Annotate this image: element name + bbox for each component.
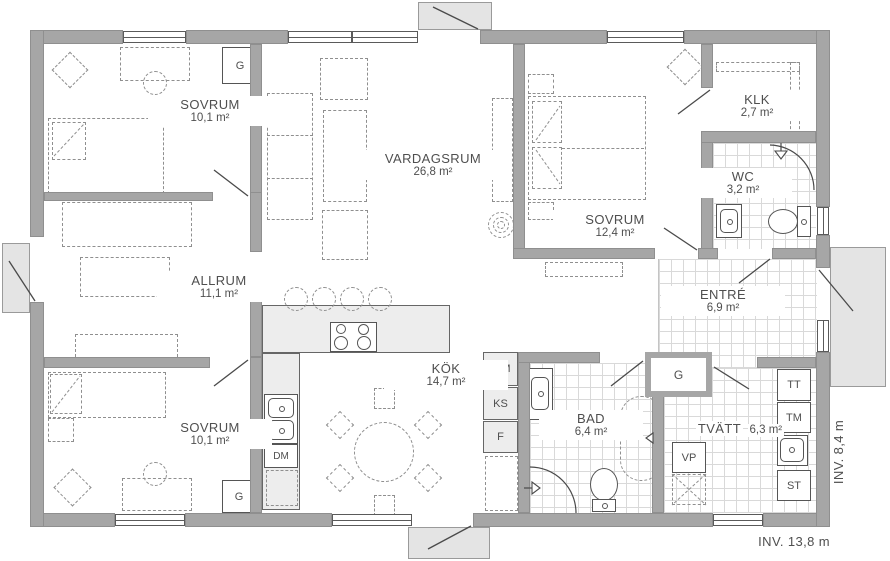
heat-pump-label: VP bbox=[682, 452, 697, 464]
wall-segment bbox=[186, 30, 288, 44]
bed-pillow bbox=[532, 147, 562, 189]
wall-segment bbox=[44, 192, 213, 201]
room-area: 2,7 m² bbox=[707, 107, 807, 120]
room-name: ALLRUM bbox=[159, 273, 279, 288]
patio-left bbox=[2, 243, 30, 313]
room-name: SOVRUM bbox=[555, 212, 675, 227]
bed-pillow bbox=[532, 101, 562, 143]
nightstand bbox=[528, 74, 554, 94]
room-label-klk: KLK 2,7 m² bbox=[705, 91, 809, 121]
room-name: SOVRUM bbox=[150, 420, 270, 435]
wall-segment bbox=[250, 192, 262, 252]
wall-segment bbox=[30, 30, 44, 237]
flush-dot bbox=[602, 503, 608, 509]
wall-segment bbox=[250, 300, 262, 357]
window bbox=[817, 207, 829, 235]
shelf-unit bbox=[322, 210, 368, 260]
inner-height-dimension: INV. 8,4 m bbox=[831, 392, 849, 512]
nightstand bbox=[528, 202, 554, 220]
room-label-sovrum-nw: SOVRUM 10,1 m² bbox=[148, 96, 272, 126]
dining-table bbox=[354, 422, 414, 482]
fridge-label: KS bbox=[493, 398, 508, 410]
bar-stool bbox=[368, 287, 392, 311]
flush-dot bbox=[801, 219, 807, 225]
room-label-sovrum-e: SOVRUM 12,4 m² bbox=[553, 211, 677, 241]
room-label-kok: KÖK 14,7 m² bbox=[384, 360, 508, 390]
bed-pillow bbox=[50, 374, 82, 414]
window bbox=[713, 514, 763, 526]
dining-chair bbox=[326, 464, 354, 492]
window bbox=[288, 31, 352, 43]
drain-dot bbox=[279, 428, 285, 434]
nightstand bbox=[48, 418, 74, 442]
wardrobe-label: G bbox=[674, 368, 683, 382]
wall-segment bbox=[684, 30, 830, 44]
drain-dot bbox=[789, 447, 795, 453]
stove-burner bbox=[334, 336, 348, 350]
patio-bottom bbox=[408, 527, 490, 559]
wall-segment bbox=[185, 513, 332, 527]
room-area: 6,3 m² bbox=[748, 424, 785, 437]
room-area: 6,4 m² bbox=[541, 426, 641, 439]
patio-top bbox=[418, 2, 492, 30]
dining-chair bbox=[374, 495, 395, 516]
room-label-tvatt: TVÄTT 6,3 m² bbox=[678, 419, 802, 439]
dining-chair bbox=[326, 411, 354, 439]
room-label-allrum: ALLRUM 11,1 m² bbox=[157, 272, 281, 302]
armchair bbox=[52, 52, 89, 89]
wall-segment bbox=[701, 131, 816, 143]
wall-segment bbox=[30, 302, 44, 527]
room-area: 10,1 m² bbox=[150, 112, 270, 125]
drain-dot bbox=[279, 406, 285, 412]
heat-pump: VP bbox=[672, 442, 706, 473]
window bbox=[607, 31, 684, 43]
wall-segment bbox=[772, 248, 816, 259]
wall-segment bbox=[816, 30, 830, 207]
wall-segment bbox=[701, 44, 713, 88]
door-leaf-sovrum-sw bbox=[214, 360, 248, 386]
counter-reserved bbox=[266, 470, 298, 506]
fridge-unit: KS bbox=[483, 387, 518, 420]
sofa bbox=[62, 202, 192, 247]
plant-core bbox=[497, 221, 505, 229]
room-area: 6,9 m² bbox=[663, 302, 783, 315]
bar-stool bbox=[284, 287, 308, 311]
room-name: TVÄTT bbox=[696, 421, 743, 436]
floor-plan: G G DM bbox=[0, 0, 890, 561]
inner-width-dimension: INV. 13,8 m bbox=[700, 534, 830, 549]
wall-segment bbox=[757, 357, 816, 368]
room-label-sovrum-sw: SOVRUM 10,1 m² bbox=[148, 419, 272, 449]
stove-burner bbox=[358, 324, 369, 335]
sofa-cushion-line bbox=[267, 135, 313, 136]
window bbox=[352, 31, 418, 43]
armchair bbox=[53, 468, 91, 506]
wall-segment bbox=[513, 44, 525, 258]
sofa-west bbox=[267, 93, 313, 220]
stove-burner bbox=[357, 336, 371, 350]
room-name: WC bbox=[696, 169, 790, 184]
room-name: BAD bbox=[541, 411, 641, 426]
bed-center-line bbox=[562, 148, 644, 149]
wall-segment bbox=[698, 248, 718, 259]
dryer-label: TT bbox=[787, 379, 800, 391]
wall-segment bbox=[652, 390, 664, 513]
room-name: KÖK bbox=[386, 361, 506, 376]
klk-shelf bbox=[716, 62, 800, 72]
floor-drain-area bbox=[672, 474, 706, 505]
room-area: 14,7 m² bbox=[386, 376, 506, 389]
stove-burner bbox=[336, 324, 346, 334]
room-label-vardagsrum: VARDAGSRUM 26,8 m² bbox=[361, 150, 505, 180]
room-name: ENTRÉ bbox=[663, 287, 783, 302]
room-name: SOVRUM bbox=[150, 97, 270, 112]
wardrobe-label: G bbox=[235, 491, 244, 503]
entry-porch-right bbox=[830, 247, 886, 387]
window bbox=[332, 514, 412, 526]
room-area: 3,2 m² bbox=[696, 184, 790, 197]
freezer-unit: F bbox=[483, 421, 518, 453]
room-label-wc: WC 3,2 m² bbox=[694, 168, 792, 198]
drain-dot bbox=[727, 219, 733, 225]
desk-chair bbox=[143, 71, 167, 95]
bar-stool bbox=[340, 287, 364, 311]
window bbox=[817, 320, 829, 352]
cleaning-cabinet-label: ST bbox=[787, 480, 801, 492]
room-name: VARDAGSRUM bbox=[363, 151, 503, 166]
cabinet-reserved bbox=[485, 456, 518, 511]
cleaning-cabinet: ST bbox=[777, 470, 811, 501]
hall-rug bbox=[545, 262, 623, 277]
dining-chair bbox=[374, 388, 395, 409]
wall-segment bbox=[473, 513, 713, 527]
freezer-label: F bbox=[497, 431, 504, 443]
room-name: KLK bbox=[707, 92, 807, 107]
room-area: 26,8 m² bbox=[363, 166, 503, 179]
dining-chair bbox=[414, 411, 442, 439]
room-area: 10,1 m² bbox=[150, 435, 270, 448]
sofa-cushion-line bbox=[267, 178, 313, 179]
room-label-bad: BAD 6,4 m² bbox=[539, 410, 643, 440]
wall-segment bbox=[44, 357, 210, 368]
hall-closet-g3: G bbox=[645, 352, 712, 397]
room-area: 11,1 m² bbox=[159, 288, 279, 301]
armchair bbox=[667, 49, 704, 86]
room-label-entre: ENTRÉ 6,9 m² bbox=[661, 286, 785, 316]
bed-pillow bbox=[52, 122, 86, 160]
door-leaf-sovrum-nw bbox=[214, 170, 248, 196]
wall-segment bbox=[816, 352, 830, 527]
dining-chair bbox=[414, 464, 442, 492]
wc-toilet-bowl bbox=[768, 209, 798, 234]
bad-toilet-bowl bbox=[590, 468, 618, 501]
wall-segment bbox=[518, 352, 530, 513]
dishwasher-label: DM bbox=[273, 451, 289, 462]
window bbox=[115, 514, 185, 526]
wardrobe-label: G bbox=[236, 60, 245, 72]
room-area: 12,4 m² bbox=[555, 227, 675, 240]
tv-bench bbox=[320, 58, 368, 100]
drain-dot bbox=[538, 391, 544, 397]
wall-segment bbox=[816, 235, 830, 268]
desk-chair bbox=[143, 462, 167, 486]
wall-segment bbox=[480, 30, 607, 44]
dryer: TT bbox=[777, 369, 811, 401]
window bbox=[123, 31, 186, 43]
wall-segment bbox=[513, 248, 655, 259]
wall-segment bbox=[518, 352, 600, 363]
bar-stool bbox=[312, 287, 336, 311]
